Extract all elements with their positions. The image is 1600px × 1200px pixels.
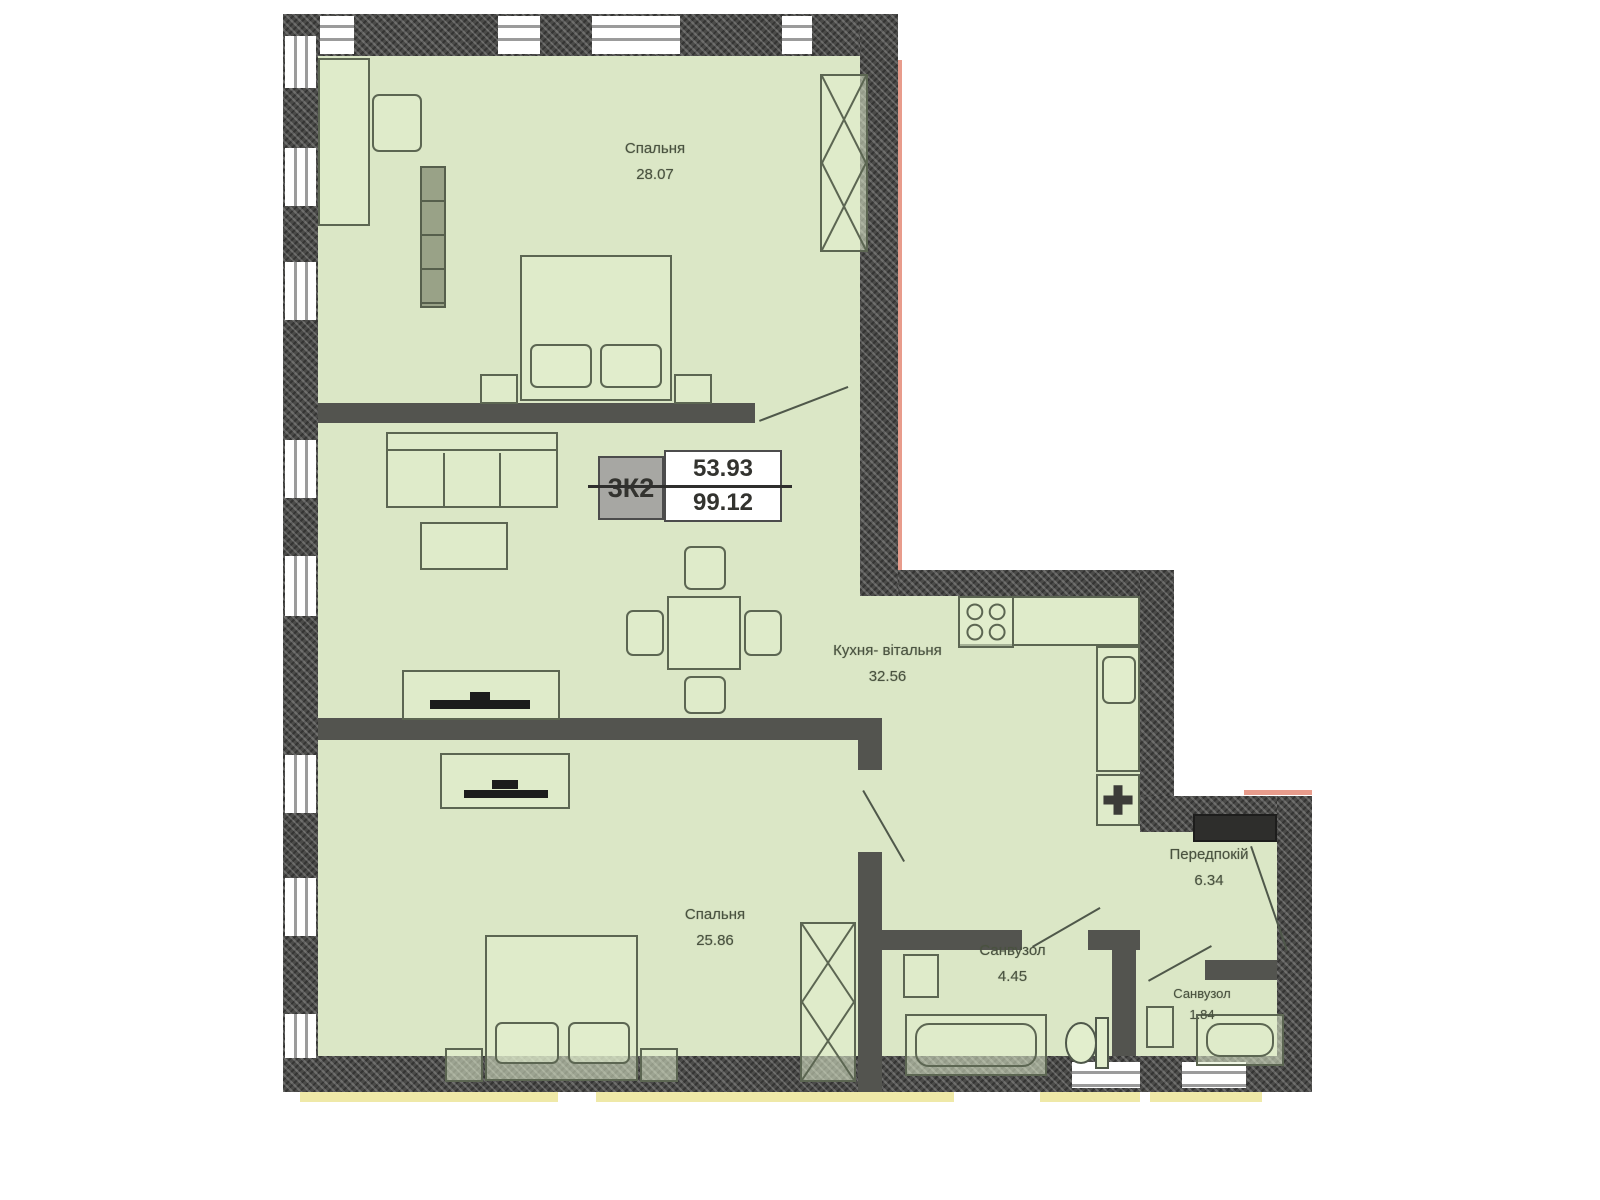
room-area: 28.07 [565, 162, 745, 188]
room-name: Санвузол [935, 938, 1090, 964]
window [592, 16, 680, 54]
pillow-icon [530, 344, 592, 388]
apartment-type-label: 3К2 [608, 473, 655, 504]
bathtub-basin [915, 1023, 1037, 1067]
coffee-table-icon [420, 522, 508, 570]
window [285, 556, 316, 616]
room-label-bedroom1: Спальня 28.07 [565, 136, 745, 187]
wall-living-bedroom2 [318, 718, 858, 740]
adjacent-wall-line [1244, 790, 1312, 795]
pillow-icon [600, 344, 662, 388]
vent-shaft-icon [1096, 774, 1140, 826]
tv-icon [464, 790, 548, 798]
wall-kitchen-right [1140, 570, 1174, 832]
room-name: Спальня [625, 902, 805, 928]
tv-icon [430, 700, 530, 709]
wall-bath-divider [1112, 930, 1136, 1056]
wall-bedroom2-hall-upper [858, 718, 882, 770]
pillow-icon [495, 1022, 559, 1064]
room-area: 1.84 [1152, 1005, 1252, 1026]
bathtub-basin [1206, 1023, 1274, 1057]
room-label-hallway: Передпокій 6.34 [1128, 842, 1290, 893]
chair-icon [744, 610, 782, 656]
room-name: Передпокій [1128, 842, 1290, 868]
wardrobe-icon [800, 922, 856, 1082]
room-label-small-bathroom: Санвузол 1.84 [1152, 984, 1252, 1026]
sink-icon [903, 954, 939, 998]
room-area: 32.56 [795, 664, 980, 690]
room-area: 4.45 [935, 964, 1090, 990]
dining-table-icon [667, 596, 741, 670]
nightstand-icon [445, 1048, 483, 1082]
window [320, 16, 354, 54]
wardrobe-cross-lines [822, 76, 866, 250]
chair-icon [626, 610, 664, 656]
pillow-icon [568, 1022, 630, 1064]
adjacent-wall-line [898, 60, 902, 572]
window [285, 1014, 316, 1058]
room-name: Санвузол [1152, 984, 1252, 1005]
wall-smallbath-top [1205, 960, 1277, 980]
wall-bedroom2-hall-lower [858, 852, 882, 1092]
tv-icon [470, 692, 490, 701]
badge-divider-line [588, 485, 792, 488]
sofa-icon [386, 432, 558, 508]
floor-plan-page: 3К2 53.93 99.12 [0, 0, 1600, 1200]
window [285, 36, 316, 88]
chair-icon [684, 676, 726, 714]
vent-plus-icon [1098, 776, 1138, 824]
room-name: Кухня- вітальня [795, 638, 980, 664]
room-area: 25.86 [625, 928, 805, 954]
wardrobe-shelf-icon [420, 166, 446, 308]
room-label-kitchen-living: Кухня- вітальня 32.56 [795, 638, 980, 689]
kitchen-sink-icon [1102, 656, 1136, 704]
window [285, 878, 316, 936]
bathtub-icon [905, 1014, 1047, 1076]
wardrobe-icon [820, 74, 868, 252]
window [285, 262, 316, 320]
toilet-icon [1062, 1014, 1110, 1072]
room-label-bathroom: Санвузол 4.45 [935, 938, 1090, 989]
nightstand-icon [674, 374, 712, 404]
living-area-value: 53.93 [666, 452, 780, 486]
nightstand-icon [640, 1048, 678, 1082]
wardrobe-cross-lines [802, 924, 854, 1080]
window [285, 755, 316, 813]
window [782, 16, 812, 54]
window [285, 148, 316, 206]
wall-bedroom1-living [318, 403, 755, 423]
room-name: Спальня [565, 136, 745, 162]
wall-bottom [283, 1056, 1312, 1092]
room-label-bedroom2: Спальня 25.86 [625, 902, 805, 953]
apartment-type-badge: 3К2 [598, 456, 664, 520]
chair-icon [684, 546, 726, 590]
chair-icon [372, 94, 422, 152]
room-area: 6.34 [1128, 868, 1290, 894]
window [498, 16, 540, 54]
entrance-door [1193, 814, 1277, 842]
window [285, 440, 316, 498]
floor-plan: 3К2 53.93 99.12 [0, 0, 1600, 1200]
total-area-value: 99.12 [666, 486, 780, 520]
desk-icon [318, 58, 370, 226]
nightstand-icon [480, 374, 518, 404]
wall-kitchen-top [898, 570, 1174, 596]
tv-icon [492, 780, 518, 789]
